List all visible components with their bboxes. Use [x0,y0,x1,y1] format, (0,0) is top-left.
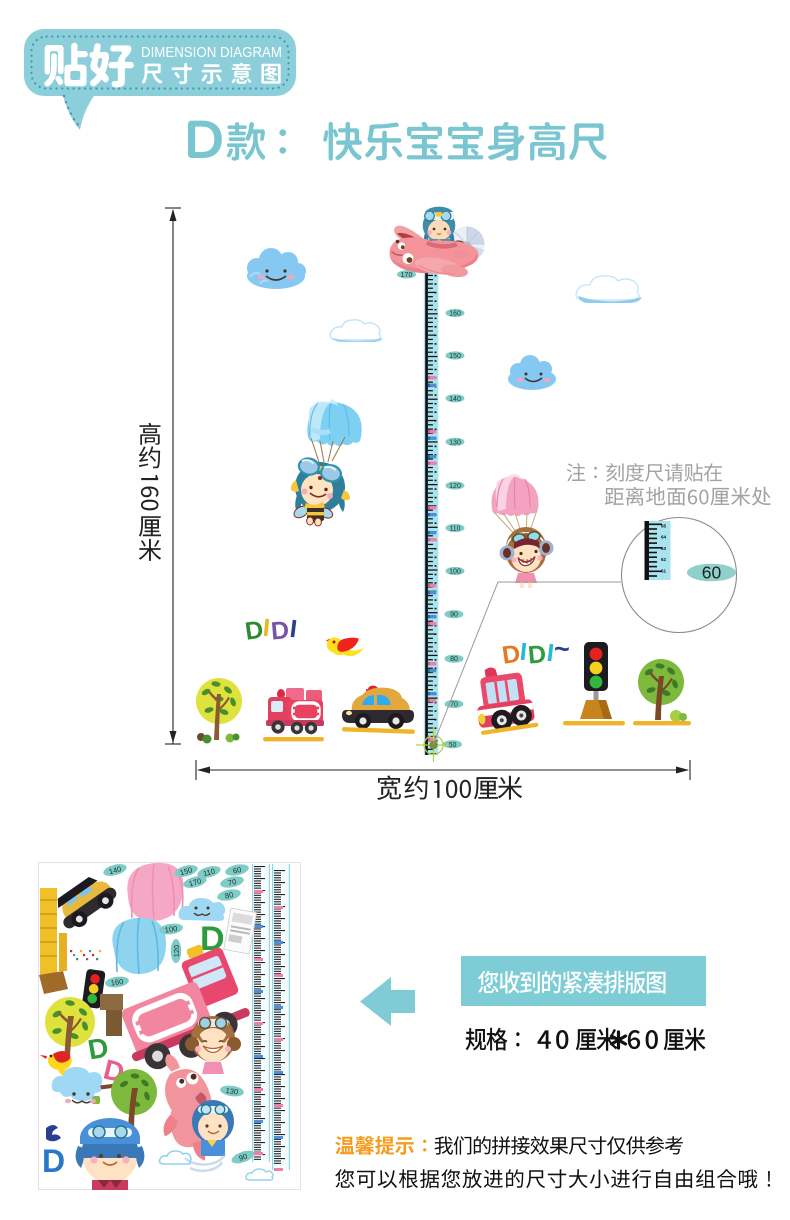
svg-text:160: 160 [449,311,461,318]
svg-text:170: 170 [401,272,413,279]
svg-text:110: 110 [449,526,460,533]
svg-text:DIMENSION DIAGRAM: DIMENSION DIAGRAM [141,44,282,61]
svg-text:70: 70 [450,702,458,709]
svg-text:60: 60 [702,563,722,583]
svg-text:65: 65 [661,524,667,529]
svg-text:160: 160 [110,977,124,988]
svg-text:150: 150 [449,353,461,360]
svg-text:63: 63 [661,546,667,551]
svg-text:80: 80 [450,656,458,663]
svg-text:90: 90 [450,612,458,619]
svg-text:61: 61 [661,568,667,573]
svg-text:100: 100 [164,924,178,935]
svg-text:140: 140 [449,396,461,403]
svg-text:130: 130 [449,439,461,446]
svg-text:62: 62 [661,557,667,562]
svg-text:D: D [42,1143,65,1179]
svg-text:64: 64 [661,535,667,540]
svg-text:D: D [527,640,547,669]
svg-text:120: 120 [172,945,181,958]
svg-text:~: ~ [554,634,570,664]
svg-text:120: 120 [449,483,461,490]
svg-text:100: 100 [449,569,461,576]
svg-text:D: D [270,616,290,645]
svg-text:I: I [288,615,298,644]
svg-text:130: 130 [225,1086,239,1097]
